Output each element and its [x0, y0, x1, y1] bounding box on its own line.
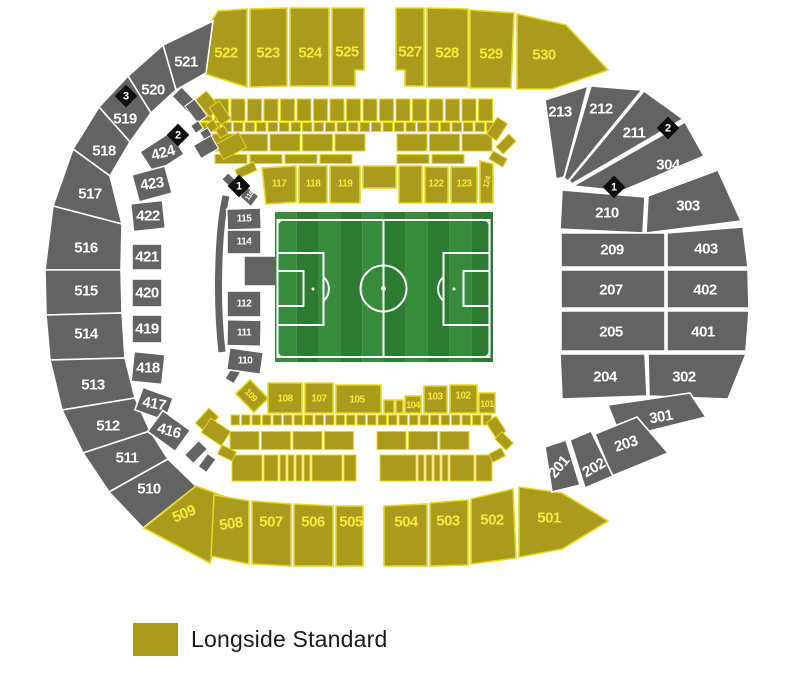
seating-block: [231, 99, 245, 121]
seating-block: [446, 99, 460, 121]
seating-block: [303, 134, 333, 151]
seating-block: [397, 134, 427, 151]
section-422: [131, 200, 166, 231]
section-119[interactable]: [330, 166, 360, 203]
legend-swatch-longside-standard: [133, 623, 178, 656]
section-101[interactable]: [479, 393, 495, 413]
seating-block: [304, 455, 310, 481]
section-210: [560, 190, 645, 233]
seating-block: [357, 415, 366, 425]
seating-block: [314, 123, 324, 132]
section-402: [667, 270, 749, 308]
section-503[interactable]: [430, 500, 468, 566]
seating-block: [198, 454, 215, 473]
seating-block: [232, 455, 262, 481]
seating-block: [281, 99, 295, 121]
seating-block: [432, 155, 464, 164]
section-421: [132, 244, 162, 270]
seating-block: [252, 415, 261, 425]
seating-block: [450, 455, 474, 481]
section-112: [227, 291, 261, 317]
gate-marker-label: 2: [175, 130, 181, 142]
seating-block: [231, 415, 240, 425]
seating-block: [264, 99, 278, 121]
seating-block: [383, 123, 393, 132]
section-204: [560, 354, 647, 399]
section-506[interactable]: [294, 504, 333, 566]
seating-block: [344, 455, 356, 481]
seating-block: [479, 99, 493, 121]
pitch-stripe: [362, 212, 384, 362]
seating-block: [294, 415, 303, 425]
seating-block: [315, 415, 324, 425]
section-207: [561, 270, 665, 308]
pitch-stripe: [297, 212, 319, 362]
seating-block: [399, 166, 422, 203]
seating-block: [406, 123, 416, 132]
section-209: [561, 233, 665, 267]
gate-marker-label: 3: [123, 91, 129, 103]
section-530[interactable]: [517, 14, 608, 89]
seating-block: [320, 155, 352, 164]
section-418: [131, 351, 165, 384]
seating-block: [291, 123, 301, 132]
seating-block: [368, 415, 377, 425]
seating-block: [476, 455, 492, 481]
seating-block: [410, 415, 419, 425]
seating-block: [395, 123, 405, 132]
section-514: [46, 313, 125, 360]
seating-block: [330, 99, 344, 121]
seating-block: [441, 415, 450, 425]
seating-block: [314, 99, 328, 121]
stadium-map: 5225235245255275285295305215205195185175…: [0, 0, 797, 610]
section-122[interactable]: [425, 167, 448, 203]
seating-block: [347, 415, 356, 425]
section-523[interactable]: [250, 8, 287, 87]
penalty-spot-right: [453, 288, 456, 291]
seating-block: [413, 99, 427, 121]
seating-block: [273, 415, 282, 425]
section-111: [227, 320, 261, 347]
section-302: [648, 354, 746, 399]
seating-block: [262, 432, 291, 450]
seating-block: [462, 99, 476, 121]
seating-block: [305, 415, 314, 425]
seating-block: [399, 415, 408, 425]
seating-block: [325, 432, 354, 450]
section-105[interactable]: [336, 385, 381, 413]
seating-block: [280, 123, 290, 132]
seating-block: [245, 123, 255, 132]
section-528[interactable]: [427, 8, 468, 87]
seating-block: [242, 415, 251, 425]
seating-block: [380, 99, 394, 121]
gate-marker-label: 2: [665, 123, 671, 135]
seating-block: [409, 432, 438, 450]
seating-block: [363, 166, 396, 188]
seating-block: [349, 123, 359, 132]
seating-block: [384, 400, 394, 413]
seating-block: [270, 134, 300, 151]
section-123[interactable]: [451, 167, 477, 203]
seating-block: [462, 134, 492, 151]
seating-block: [389, 415, 398, 425]
seating-block: [418, 123, 428, 132]
section-524[interactable]: [290, 8, 329, 86]
section-419: [132, 315, 162, 343]
section-527[interactable]: [396, 8, 424, 86]
seating-block: [440, 432, 469, 450]
section-525[interactable]: [332, 8, 364, 86]
seating-block: [441, 123, 451, 132]
section-103[interactable]: [424, 386, 447, 413]
section-303: [646, 170, 741, 233]
seating-block: [464, 123, 474, 132]
seating-block: [312, 455, 342, 481]
seating-block: [430, 134, 460, 151]
seating-block: [377, 432, 406, 450]
seating-block: [378, 415, 387, 425]
section-504[interactable]: [384, 504, 427, 566]
section-107[interactable]: [305, 383, 333, 413]
pitch-stripe: [406, 212, 428, 362]
seating-block: [336, 415, 345, 425]
section-502[interactable]: [471, 489, 516, 564]
seating-block: [473, 415, 482, 425]
seating-block: [429, 123, 439, 132]
seating-block: [293, 432, 322, 450]
seating-block: [420, 415, 429, 425]
seating-block: [452, 123, 462, 132]
walkway-arc: [219, 196, 226, 352]
section-501[interactable]: [519, 487, 608, 557]
section-109[interactable]: [236, 380, 268, 413]
section-104[interactable]: [405, 396, 421, 413]
seating-block: [250, 155, 282, 164]
legend: Longside Standard: [133, 623, 388, 656]
pitch-stripe: [340, 212, 362, 362]
gate-marker-label: 1: [611, 182, 617, 194]
seating-block: [372, 123, 382, 132]
seating-block: [263, 415, 272, 425]
seating-block: [257, 123, 267, 132]
seating-block: [442, 455, 448, 481]
seating-block: [303, 123, 313, 132]
seating-block: [335, 134, 365, 151]
seating-block: [234, 123, 244, 132]
seating-block: [285, 155, 317, 164]
seating-block: [284, 415, 293, 425]
seating-block: [248, 99, 262, 121]
seating-block: [326, 415, 335, 425]
section-508[interactable]: [211, 495, 249, 564]
section-505[interactable]: [336, 506, 363, 566]
seating-block: [434, 455, 440, 481]
seating-block: [268, 123, 278, 132]
seating-block: [347, 99, 361, 121]
penalty-spot-left: [312, 288, 315, 291]
section-114: [227, 230, 261, 254]
seating-block: [452, 415, 461, 425]
section-124[interactable]: [480, 161, 493, 203]
seating-block: [288, 455, 294, 481]
section-205: [561, 311, 665, 351]
pitch-stripe: [449, 212, 471, 362]
seating-block: [230, 432, 259, 450]
section-420: [132, 279, 162, 307]
section-102[interactable]: [450, 385, 477, 413]
seating-block: [244, 256, 278, 286]
seating-block: [426, 455, 432, 481]
section-403: [667, 227, 748, 267]
seating-block: [264, 455, 278, 481]
seating-block: [296, 455, 302, 481]
seating-block: [397, 155, 429, 164]
section-115: [227, 208, 262, 230]
section-118[interactable]: [299, 166, 327, 203]
seating-block: [429, 99, 443, 121]
gate-marker-label: 1: [236, 181, 242, 193]
seat-map-page: 5225235245255275285295305215205195185175…: [0, 0, 797, 695]
seating-block: [475, 123, 485, 132]
section-423: [132, 166, 172, 202]
section-117[interactable]: [262, 166, 296, 204]
seating-block: [380, 455, 416, 481]
centre-spot: [381, 286, 386, 291]
section-108[interactable]: [268, 383, 302, 413]
seating-block: [396, 400, 403, 413]
section-529[interactable]: [470, 10, 514, 88]
seating-block: [418, 455, 424, 481]
seating-block: [431, 415, 440, 425]
section-507[interactable]: [252, 501, 291, 566]
seating-block: [396, 99, 410, 121]
seating-block: [462, 415, 471, 425]
seating-block: [337, 123, 347, 132]
football-pitch: [275, 212, 493, 362]
legend-label: Longside Standard: [191, 626, 388, 653]
seating-block: [363, 99, 377, 121]
seating-block: [326, 123, 336, 132]
pitch-stripe: [384, 212, 406, 362]
seating-block: [280, 455, 286, 481]
seating-block: [360, 123, 370, 132]
section-515: [45, 270, 122, 315]
section-401: [667, 311, 749, 351]
seating-block: [297, 99, 311, 121]
section-110: [227, 348, 264, 375]
